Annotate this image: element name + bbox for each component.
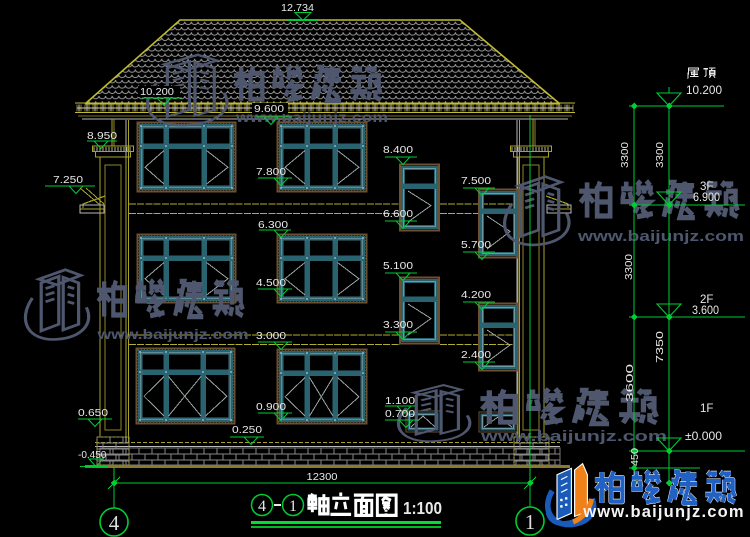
svg-text:7350: 7350 bbox=[655, 330, 666, 363]
svg-text:1: 1 bbox=[289, 498, 297, 515]
svg-text:5.100: 5.100 bbox=[383, 261, 414, 272]
svg-text:6.300: 6.300 bbox=[258, 220, 289, 231]
svg-text:3600: 3600 bbox=[625, 363, 636, 402]
svg-text:www.baijunjz.com: www.baijunjz.com bbox=[582, 503, 745, 521]
svg-text:1.100: 1.100 bbox=[385, 396, 416, 407]
svg-text:4: 4 bbox=[109, 511, 120, 535]
svg-text:3.300: 3.300 bbox=[383, 320, 414, 331]
svg-text:10.200: 10.200 bbox=[686, 85, 722, 97]
svg-text:3.600: 3.600 bbox=[692, 305, 719, 317]
svg-text:3300: 3300 bbox=[655, 141, 666, 168]
svg-text:450: 450 bbox=[630, 448, 641, 466]
svg-text:10.200: 10.200 bbox=[140, 87, 174, 98]
svg-text:3.000: 3.000 bbox=[256, 331, 287, 342]
svg-text:1: 1 bbox=[525, 510, 536, 534]
svg-text:6.600: 6.600 bbox=[383, 209, 414, 220]
svg-text:4: 4 bbox=[258, 498, 266, 515]
svg-text:5.700: 5.700 bbox=[461, 240, 492, 251]
svg-text:8.950: 8.950 bbox=[87, 131, 118, 142]
svg-text:8.400: 8.400 bbox=[383, 145, 414, 156]
svg-text:www.baijunjz.com: www.baijunjz.com bbox=[480, 429, 667, 445]
svg-text:±0.000: ±0.000 bbox=[685, 431, 722, 443]
svg-text:3300: 3300 bbox=[624, 253, 635, 280]
svg-text:www.baijunjz.com: www.baijunjz.com bbox=[577, 228, 744, 245]
svg-text:2.400: 2.400 bbox=[461, 350, 492, 361]
svg-text:3300: 3300 bbox=[620, 141, 631, 168]
svg-text:0.900: 0.900 bbox=[256, 402, 287, 413]
svg-text:0.650: 0.650 bbox=[78, 408, 109, 419]
svg-text:9.600: 9.600 bbox=[254, 104, 285, 115]
svg-text:7.500: 7.500 bbox=[461, 176, 492, 187]
svg-text:0.700: 0.700 bbox=[385, 409, 416, 420]
svg-text:7.800: 7.800 bbox=[256, 167, 287, 178]
svg-text:1:100: 1:100 bbox=[403, 498, 442, 518]
svg-text:4.200: 4.200 bbox=[461, 290, 492, 301]
svg-text:12300: 12300 bbox=[307, 471, 338, 483]
svg-text:1F: 1F bbox=[700, 403, 713, 415]
svg-text:6.900: 6.900 bbox=[693, 192, 720, 204]
svg-text:0.250: 0.250 bbox=[232, 425, 263, 436]
svg-text:www.baijunjz.com: www.baijunjz.com bbox=[96, 326, 248, 342]
svg-text:7.250: 7.250 bbox=[53, 175, 84, 186]
svg-text:4.500: 4.500 bbox=[256, 278, 287, 289]
